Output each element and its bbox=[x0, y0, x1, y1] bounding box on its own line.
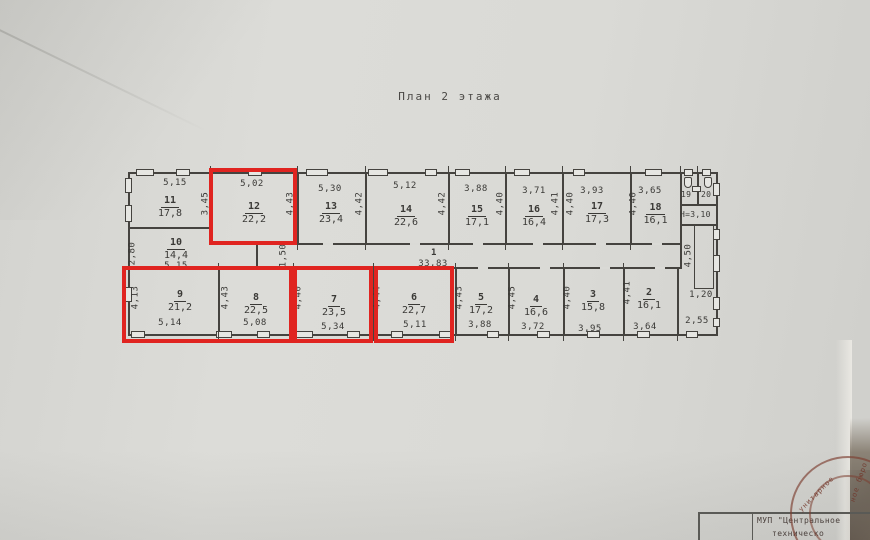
door-opening bbox=[540, 267, 550, 269]
paper-shadow-bottom bbox=[0, 450, 870, 540]
dimension-tick bbox=[562, 241, 563, 250]
room-number: 11 bbox=[161, 195, 179, 208]
dimension-tick bbox=[365, 166, 366, 178]
dim-top-11: 5,15 bbox=[145, 178, 205, 188]
room-area: 23,4 bbox=[319, 214, 343, 226]
room-number: 15 bbox=[468, 204, 486, 217]
corridor-number: 1 bbox=[424, 248, 444, 258]
window-marker bbox=[573, 169, 585, 176]
room-number: 13 bbox=[322, 201, 340, 214]
room-number: 2 bbox=[643, 287, 655, 300]
door-opening bbox=[533, 243, 543, 245]
door-opening bbox=[596, 243, 606, 245]
room-20-number: 20 bbox=[701, 190, 711, 199]
dimension-tick bbox=[680, 166, 681, 178]
highlight-box-room-6 bbox=[374, 266, 454, 343]
toilet-icon bbox=[684, 177, 692, 188]
window-marker bbox=[713, 229, 720, 240]
window-marker bbox=[713, 183, 720, 196]
room-3: 3 15,8 bbox=[566, 289, 620, 313]
dim-top-13: 5,30 bbox=[300, 184, 360, 194]
highlight-box-room-12 bbox=[209, 168, 297, 245]
scanned-floor-plan-page: План 2 этажа 11 17,8 12 22,2 13 23,4 14 … bbox=[0, 0, 870, 540]
sink-icon bbox=[692, 186, 701, 192]
window-marker bbox=[136, 169, 154, 176]
room-number: 14 bbox=[397, 204, 415, 217]
dim-top-14: 5,12 bbox=[375, 181, 435, 191]
window-marker bbox=[713, 318, 720, 327]
dimension-tick bbox=[365, 241, 366, 250]
door-opening bbox=[655, 267, 665, 269]
dim-stair-b: 2,55 bbox=[680, 316, 714, 326]
room-number: 10 bbox=[167, 237, 185, 250]
dimension-tick bbox=[297, 241, 298, 250]
dim-side-17: 4,40 bbox=[629, 189, 640, 219]
door-opening bbox=[600, 267, 610, 269]
dimension-tick bbox=[448, 241, 449, 250]
dim-side-5: 4,43 bbox=[455, 283, 466, 313]
room-area: 17,3 bbox=[585, 214, 609, 226]
door-opening bbox=[410, 243, 420, 245]
room-number: 5 bbox=[475, 292, 487, 305]
dim-bottom-3: 3,95 bbox=[564, 324, 616, 334]
window-marker bbox=[125, 178, 132, 193]
room-area: 16,1 bbox=[643, 215, 667, 227]
wall-segment bbox=[680, 204, 718, 206]
room-number: 17 bbox=[588, 201, 606, 214]
wall-segment bbox=[716, 172, 718, 336]
dimension-tick bbox=[508, 263, 509, 272]
dim-stair-a: 1,20 bbox=[684, 290, 718, 300]
dim-bottom-4: 3,72 bbox=[508, 322, 558, 332]
room-number: 16 bbox=[525, 204, 543, 217]
window-marker bbox=[125, 205, 132, 222]
window-marker bbox=[455, 169, 470, 176]
dim-left-280: 2,80 bbox=[128, 239, 139, 269]
window-marker bbox=[176, 169, 190, 176]
dimension-tick bbox=[563, 263, 564, 272]
wall-segment bbox=[128, 227, 212, 229]
window-marker bbox=[425, 169, 437, 176]
dimension-tick bbox=[630, 166, 631, 178]
window-marker bbox=[368, 169, 388, 176]
dim-side-15: 4,40 bbox=[496, 189, 507, 219]
dimension-tick bbox=[697, 166, 698, 178]
dim-bottom-5: 3,88 bbox=[455, 320, 505, 330]
room-19-number: 19 bbox=[681, 190, 691, 199]
window-marker bbox=[713, 255, 720, 272]
highlight-box-rooms-9-8 bbox=[122, 266, 297, 343]
dim-side-3: 4,40 bbox=[563, 283, 574, 313]
window-marker bbox=[514, 169, 530, 176]
window-marker bbox=[537, 331, 550, 338]
room-area: 22,6 bbox=[394, 217, 418, 229]
window-marker bbox=[487, 331, 499, 338]
window-marker bbox=[702, 169, 711, 176]
door-opening bbox=[478, 267, 488, 269]
ceiling-height-note: Н=3,10 bbox=[680, 210, 711, 219]
room-area: 16,1 bbox=[637, 300, 661, 312]
room-number: 3 bbox=[587, 289, 599, 302]
dimension-tick bbox=[677, 329, 678, 341]
room-area: 16,6 bbox=[524, 307, 548, 319]
room-area: 14,4 bbox=[164, 250, 188, 262]
room-area: 17,8 bbox=[158, 208, 182, 220]
wall-segment bbox=[680, 172, 682, 269]
door-opening bbox=[652, 243, 662, 245]
room-area: 15,8 bbox=[581, 302, 605, 314]
room-area: 17,2 bbox=[469, 305, 493, 317]
dim-top-15: 3,88 bbox=[450, 184, 502, 194]
room-number: 18 bbox=[646, 202, 664, 215]
window-marker bbox=[306, 169, 328, 176]
title-block-divider bbox=[752, 512, 753, 540]
window-marker bbox=[645, 169, 662, 176]
room-10: 10 14,4 bbox=[140, 237, 212, 261]
dimension-tick bbox=[455, 329, 456, 341]
toilet-icon bbox=[704, 177, 712, 188]
dimension-tick bbox=[297, 166, 298, 178]
dim-side-4: 4,45 bbox=[508, 283, 519, 313]
highlight-box-room-7 bbox=[289, 266, 373, 343]
stairwell-outline bbox=[694, 225, 714, 289]
room-18: 18 16,1 bbox=[633, 202, 678, 226]
room-area: 16,4 bbox=[522, 217, 546, 229]
dimension-tick bbox=[505, 166, 506, 178]
dimension-tick bbox=[448, 166, 449, 178]
dimension-tick bbox=[562, 166, 563, 178]
wall-segment bbox=[562, 172, 564, 245]
room-area: 17,1 bbox=[465, 217, 489, 229]
dim-side-16: 4,41 bbox=[551, 189, 562, 219]
room-14: 14 22,6 bbox=[368, 204, 444, 228]
title-block-border bbox=[698, 512, 700, 540]
dimension-tick bbox=[505, 241, 506, 250]
door-opening bbox=[323, 243, 333, 245]
page-title: План 2 этажа bbox=[360, 90, 540, 103]
room-11: 11 17,8 bbox=[132, 195, 208, 219]
room-13: 13 23,4 bbox=[300, 201, 362, 225]
dim-stair-depth: 4,50 bbox=[684, 241, 695, 271]
window-marker bbox=[684, 169, 693, 176]
room-number: 4 bbox=[530, 294, 542, 307]
window-marker bbox=[637, 331, 650, 338]
wall-segment bbox=[677, 269, 679, 336]
dim-side-16b: 4,40 bbox=[566, 189, 577, 219]
dim-bottom-2: 3,64 bbox=[620, 322, 670, 332]
dim-side-13: 4,42 bbox=[355, 189, 366, 219]
dimension-tick bbox=[623, 263, 624, 272]
wall-segment bbox=[297, 172, 299, 245]
door-opening bbox=[473, 243, 483, 245]
dim-side-2: 4,41 bbox=[623, 278, 634, 308]
window-marker bbox=[686, 331, 698, 338]
dimension-tick bbox=[630, 241, 631, 250]
room-4: 4 16,6 bbox=[511, 294, 561, 318]
dim-side-14: 4,42 bbox=[438, 189, 449, 219]
